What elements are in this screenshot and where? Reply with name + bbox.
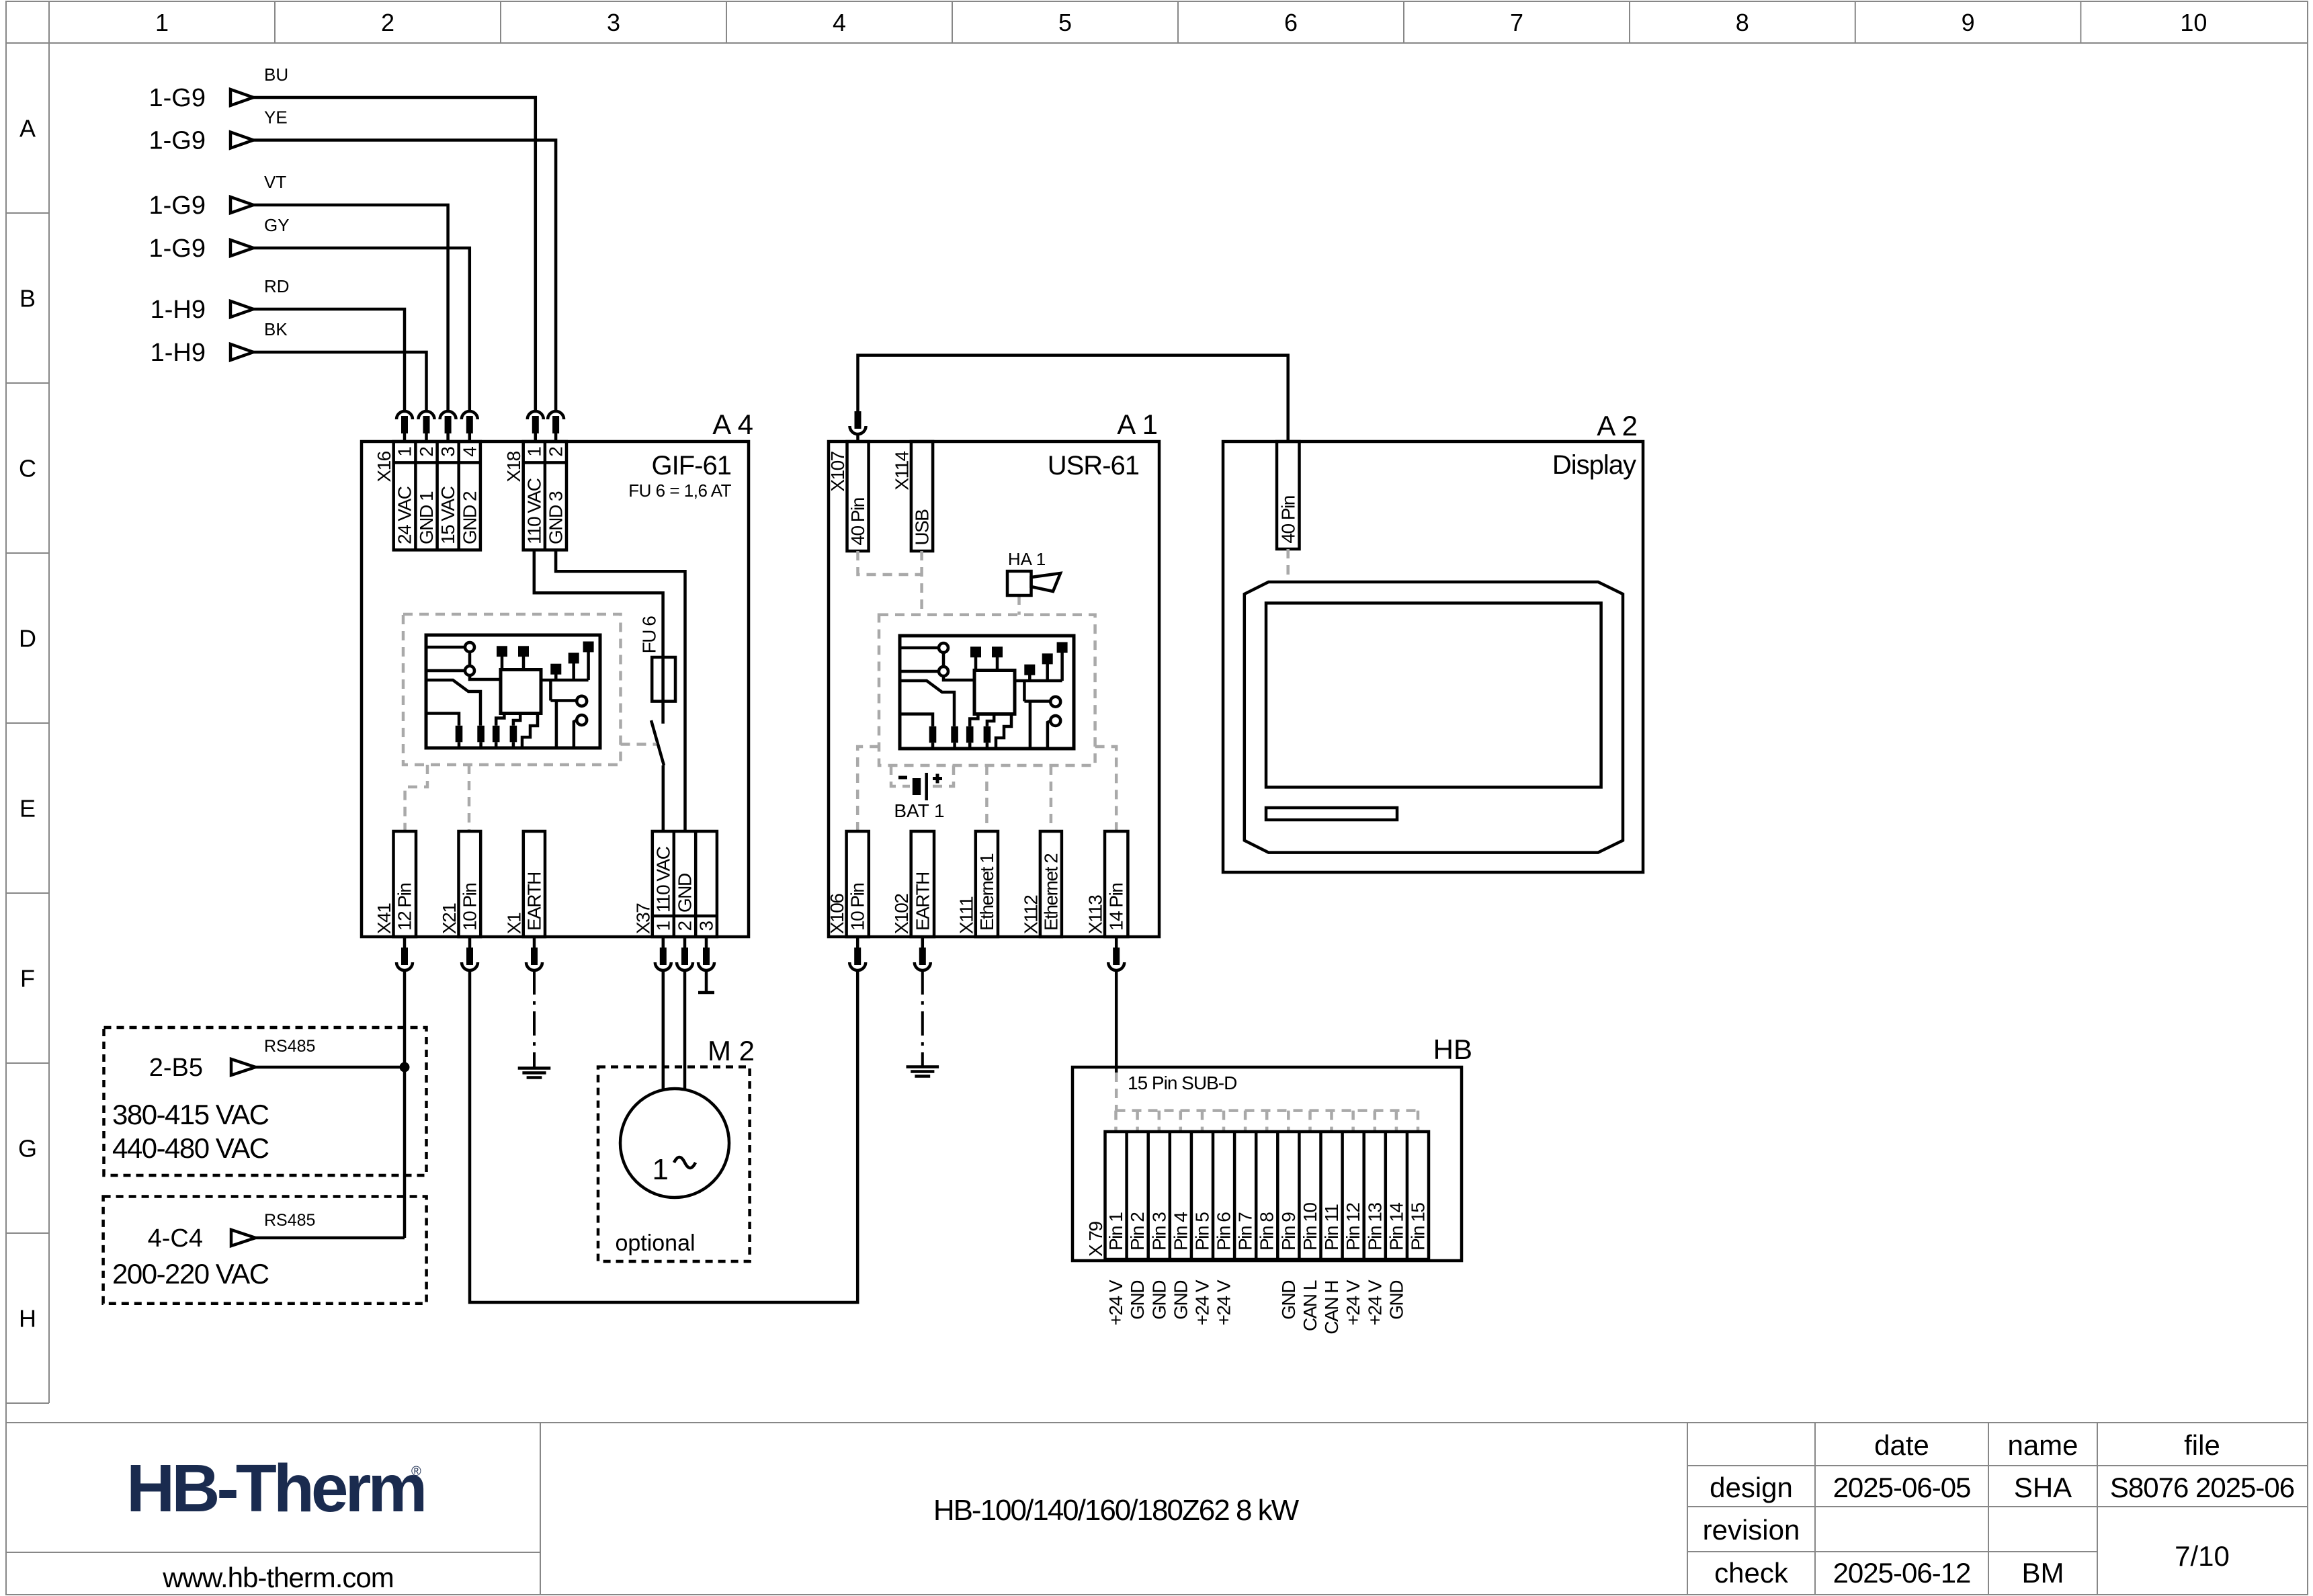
svg-text:1-G9: 1-G9: [149, 127, 206, 155]
svg-text:4: 4: [459, 447, 480, 457]
svg-text:X37: X37: [632, 899, 653, 934]
svg-text:S8076 2025-06: S8076 2025-06: [2110, 1472, 2294, 1503]
svg-text:Pin 11: Pin 11: [1321, 1204, 1342, 1251]
svg-text:E: E: [19, 795, 36, 823]
svg-text:BAT 1: BAT 1: [894, 800, 944, 821]
svg-text:7/10: 7/10: [2175, 1540, 2230, 1572]
svg-text:6: 6: [1284, 9, 1298, 36]
svg-text:X102: X102: [891, 890, 912, 934]
svg-text:GIF-61: GIF-61: [652, 451, 731, 480]
svg-text:Pin 12: Pin 12: [1343, 1203, 1363, 1251]
svg-text:2: 2: [675, 921, 696, 931]
svg-text:optional: optional: [615, 1230, 695, 1256]
svg-text:date: date: [1874, 1429, 1929, 1461]
svg-text:380-415 VAC: 380-415 VAC: [112, 1099, 269, 1130]
svg-text:1-H9: 1-H9: [151, 339, 206, 367]
svg-text:440-480 VAC: 440-480 VAC: [112, 1132, 269, 1164]
svg-text:EARTH: EARTH: [912, 872, 933, 931]
svg-text:4: 4: [833, 9, 846, 36]
svg-text:check: check: [1714, 1557, 1789, 1589]
svg-text:4-C4: 4-C4: [148, 1224, 203, 1253]
svg-text:1-G9: 1-G9: [149, 84, 206, 112]
svg-text:CAN L: CAN L: [1300, 1280, 1320, 1331]
svg-text:G: G: [18, 1135, 37, 1163]
svg-text:HB-Therm: HB-Therm: [126, 1451, 424, 1526]
svg-text:Pin 3: Pin 3: [1148, 1212, 1169, 1251]
svg-text:+24 V: +24 V: [1192, 1279, 1213, 1325]
svg-text:Pin 14: Pin 14: [1386, 1203, 1406, 1251]
svg-text:GND 3: GND 3: [546, 491, 566, 544]
svg-text:CAN H: CAN H: [1321, 1281, 1342, 1335]
svg-text:X107: X107: [827, 448, 848, 492]
svg-text:RS485: RS485: [264, 1037, 315, 1056]
svg-text:14 Pin: 14 Pin: [1106, 884, 1127, 931]
svg-text:1: 1: [155, 9, 169, 36]
svg-text:X21: X21: [439, 899, 460, 934]
svg-text:10 Pin: 10 Pin: [459, 884, 480, 931]
svg-text:GND: GND: [675, 874, 696, 913]
svg-text:USR-61: USR-61: [1048, 451, 1139, 480]
svg-text:2: 2: [381, 9, 394, 36]
svg-text:Pin 15: Pin 15: [1407, 1203, 1428, 1251]
svg-text:design: design: [1710, 1472, 1793, 1503]
svg-text:3: 3: [696, 921, 717, 931]
svg-text:revision: revision: [1703, 1514, 1800, 1546]
svg-text:+24 V: +24 V: [1214, 1279, 1234, 1325]
svg-text:HB-100/140/160/180Z62 8 kW: HB-100/140/160/180Z62 8 kW: [933, 1494, 1300, 1527]
svg-text:Pin 9: Pin 9: [1278, 1212, 1299, 1251]
svg-text:YE: YE: [264, 108, 288, 128]
svg-text:GND: GND: [1170, 1281, 1191, 1320]
svg-text:200-220 VAC: 200-220 VAC: [112, 1258, 269, 1290]
svg-text:B: B: [19, 285, 36, 312]
svg-text:12 Pin: 12 Pin: [394, 884, 415, 931]
svg-text:Ethernet 1: Ethernet 1: [976, 853, 997, 931]
svg-text:D: D: [19, 625, 36, 653]
svg-text:Pin 2: Pin 2: [1127, 1212, 1148, 1251]
svg-text:X114: X114: [891, 448, 912, 491]
svg-text:1: 1: [394, 447, 415, 457]
svg-text:1-G9: 1-G9: [149, 192, 206, 220]
svg-text:SHA: SHA: [2014, 1472, 2072, 1503]
svg-text:Pin 4: Pin 4: [1170, 1212, 1191, 1251]
svg-text:110 VAC: 110 VAC: [523, 478, 544, 544]
svg-text:H: H: [19, 1305, 36, 1333]
svg-text:110 VAC: 110 VAC: [653, 846, 673, 913]
svg-text:A 1: A 1: [1117, 409, 1158, 440]
svg-text:A 2: A 2: [1597, 410, 1638, 442]
svg-text:Pin 13: Pin 13: [1364, 1203, 1385, 1251]
svg-text:FU 6 = 1,6 AT: FU 6 = 1,6 AT: [628, 480, 731, 501]
svg-text:Display: Display: [1552, 450, 1636, 480]
svg-text:3: 3: [607, 9, 620, 36]
svg-text:®: ®: [411, 1464, 421, 1479]
svg-text:2025-06-12: 2025-06-12: [1833, 1557, 1971, 1589]
svg-text:10 Pin: 10 Pin: [847, 884, 868, 931]
svg-text:A: A: [19, 115, 36, 142]
svg-text:40 Pin: 40 Pin: [847, 498, 868, 545]
svg-text:8: 8: [1736, 9, 1749, 36]
svg-text:Ethernet 2: Ethernet 2: [1040, 853, 1061, 931]
svg-text:A 4: A 4: [712, 409, 753, 440]
svg-text:2: 2: [416, 447, 437, 457]
svg-text:BU: BU: [264, 65, 288, 85]
svg-text:1-G9: 1-G9: [149, 235, 206, 263]
svg-text:M 2: M 2: [708, 1035, 755, 1066]
svg-text:BK: BK: [264, 319, 288, 339]
svg-text:BM: BM: [2022, 1557, 2064, 1589]
svg-text:www.hb-therm.com: www.hb-therm.com: [162, 1562, 393, 1593]
svg-text:GND 1: GND 1: [416, 491, 437, 544]
svg-text:X 79: X 79: [1085, 1218, 1106, 1257]
svg-text:EARTH: EARTH: [523, 872, 544, 931]
svg-text:GND: GND: [1148, 1281, 1169, 1320]
svg-text:F: F: [20, 965, 35, 993]
svg-text:2025-06-05: 2025-06-05: [1833, 1472, 1971, 1503]
svg-text:1: 1: [653, 921, 673, 931]
svg-text:2-B5: 2-B5: [149, 1054, 203, 1082]
svg-text:X106: X106: [827, 890, 847, 934]
svg-text:X1: X1: [503, 909, 524, 934]
svg-text:GND 2: GND 2: [459, 491, 480, 544]
svg-text:Pin 10: Pin 10: [1300, 1203, 1320, 1251]
svg-text:+24 V: +24 V: [1105, 1279, 1126, 1325]
svg-text:file: file: [2184, 1429, 2220, 1461]
svg-text:GND: GND: [1278, 1281, 1299, 1320]
svg-text:15 Pin SUB-D: 15 Pin SUB-D: [1128, 1073, 1236, 1093]
svg-text:1: 1: [653, 1153, 669, 1186]
svg-text:GND: GND: [1386, 1281, 1406, 1320]
svg-text:10: 10: [2180, 9, 2207, 36]
svg-text:1: 1: [523, 447, 544, 457]
svg-text:RD: RD: [264, 276, 290, 296]
svg-text:USB: USB: [912, 509, 933, 546]
svg-text:VT: VT: [264, 172, 286, 192]
svg-text:9: 9: [1962, 9, 1975, 36]
svg-text:Pin 5: Pin 5: [1192, 1212, 1213, 1251]
svg-text:1-H9: 1-H9: [151, 296, 206, 324]
svg-text:X113: X113: [1085, 891, 1106, 934]
svg-text:2: 2: [546, 447, 566, 457]
svg-text:GND: GND: [1127, 1281, 1148, 1320]
svg-text:15 VAC: 15 VAC: [437, 486, 458, 544]
svg-text:RS485: RS485: [264, 1211, 315, 1230]
svg-text:X16: X16: [374, 448, 394, 482]
svg-text:name: name: [2007, 1429, 2078, 1461]
svg-text:Pin 7: Pin 7: [1235, 1212, 1256, 1251]
svg-text:GY: GY: [264, 215, 290, 235]
svg-text:3: 3: [437, 447, 458, 457]
svg-text:7: 7: [1510, 9, 1523, 36]
svg-text:X41: X41: [374, 899, 394, 934]
svg-text:HA 1: HA 1: [1008, 549, 1046, 569]
svg-text:+24 V: +24 V: [1343, 1279, 1363, 1325]
svg-text:X112: X112: [1020, 891, 1041, 934]
svg-text:X111: X111: [956, 892, 976, 934]
svg-text:Pin 6: Pin 6: [1214, 1212, 1234, 1251]
svg-text:5: 5: [1058, 9, 1072, 36]
svg-text:+24 V: +24 V: [1364, 1279, 1385, 1325]
svg-text:Pin 8: Pin 8: [1257, 1212, 1277, 1251]
svg-text:C: C: [19, 455, 36, 482]
svg-text:X18: X18: [503, 448, 524, 482]
svg-text:24 VAC: 24 VAC: [394, 486, 415, 544]
svg-text:Pin 1: Pin 1: [1105, 1212, 1126, 1251]
svg-text:HB: HB: [1433, 1034, 1472, 1065]
svg-text:40 Pin: 40 Pin: [1277, 496, 1298, 543]
svg-text:FU 6: FU 6: [639, 616, 660, 654]
